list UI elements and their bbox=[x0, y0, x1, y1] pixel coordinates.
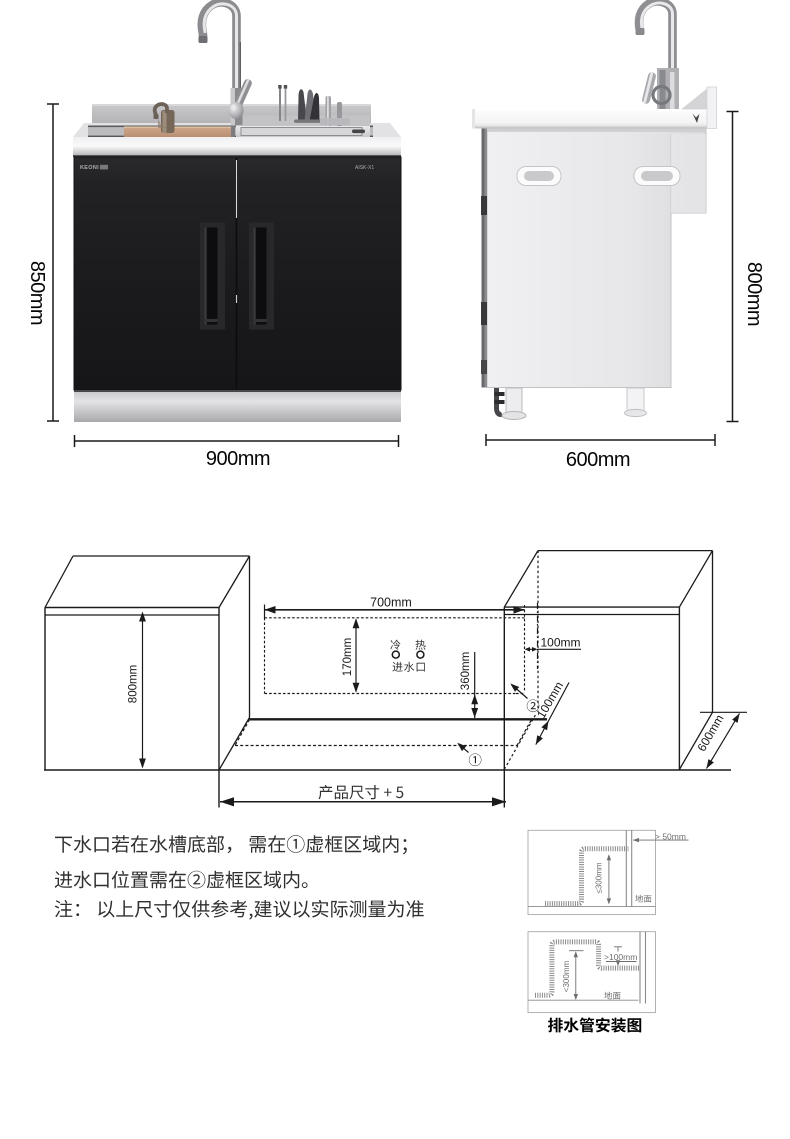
svg-text:KEONI: KEONI bbox=[80, 165, 99, 171]
svg-text:>100mm: >100mm bbox=[604, 952, 637, 962]
svg-text:800mm: 800mm bbox=[743, 262, 765, 326]
svg-text:<300mm: <300mm bbox=[562, 960, 571, 992]
svg-text:AISK-X1: AISK-X1 bbox=[355, 165, 374, 171]
svg-text:800mm: 800mm bbox=[128, 665, 140, 703]
svg-text:170mm: 170mm bbox=[342, 638, 354, 676]
svg-text:100mm: 100mm bbox=[541, 636, 581, 650]
svg-text:≤300mm: ≤300mm bbox=[595, 862, 604, 893]
svg-text:900mm: 900mm bbox=[206, 448, 270, 470]
svg-text:360mm: 360mm bbox=[460, 652, 472, 690]
svg-text:> 50mm: > 50mm bbox=[655, 832, 686, 842]
svg-text:850mm: 850mm bbox=[26, 261, 48, 325]
svg-text:600mm: 600mm bbox=[566, 449, 630, 471]
svg-text:700mm: 700mm bbox=[370, 596, 412, 610]
